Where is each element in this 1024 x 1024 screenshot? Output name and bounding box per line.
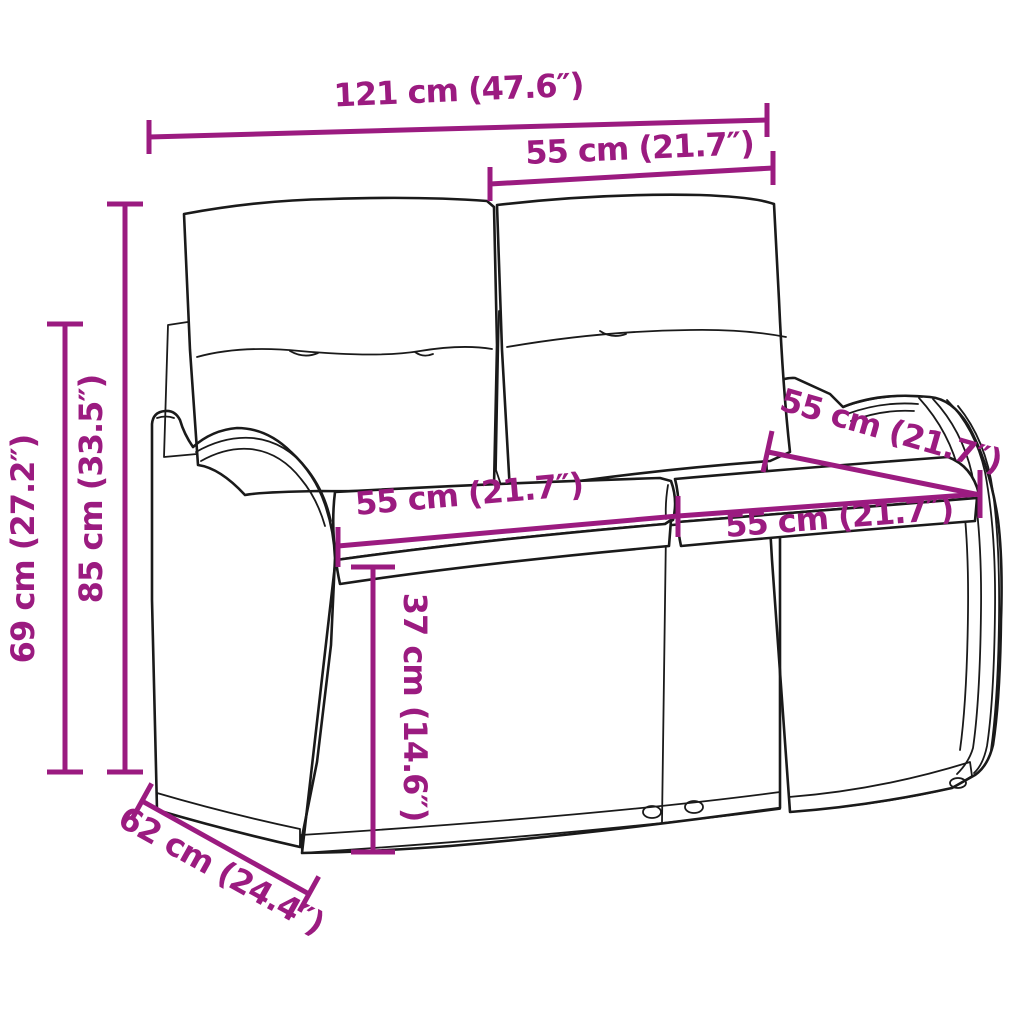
dim-label-armrest-height: 69 cm (27.2″) (4, 435, 42, 664)
dim-overall-depth: 62 cm (24.4″) (112, 784, 330, 943)
bench-illustration: 121 cm (47.6″) 55 cm (21.7″) 85 cm (33.5… (0, 0, 1024, 1024)
right-foot (950, 778, 966, 788)
dim-label-overall-depth: 62 cm (24.4″) (112, 798, 330, 942)
dim-label-overall-width: 121 cm (47.6″) (333, 66, 584, 115)
dim-label-seat-height: 37 cm (14.6″) (396, 593, 434, 822)
dim-seat-height: 37 cm (14.6″) (351, 567, 434, 852)
dim-label-backrest-section-width: 55 cm (21.7″) (524, 124, 754, 172)
back-cushion-right (497, 195, 790, 492)
dimension-diagram: 121 cm (47.6″) 55 cm (21.7″) 85 cm (33.5… (0, 0, 1024, 1024)
seat-divider-seam (662, 530, 666, 822)
dim-backrest-section-width: 55 cm (21.7″) (490, 124, 773, 201)
right-armrest-foot-rail (789, 762, 972, 812)
dim-overall-height: 85 cm (33.5″) (72, 204, 143, 772)
dim-label-overall-height: 85 cm (33.5″) (72, 375, 110, 604)
